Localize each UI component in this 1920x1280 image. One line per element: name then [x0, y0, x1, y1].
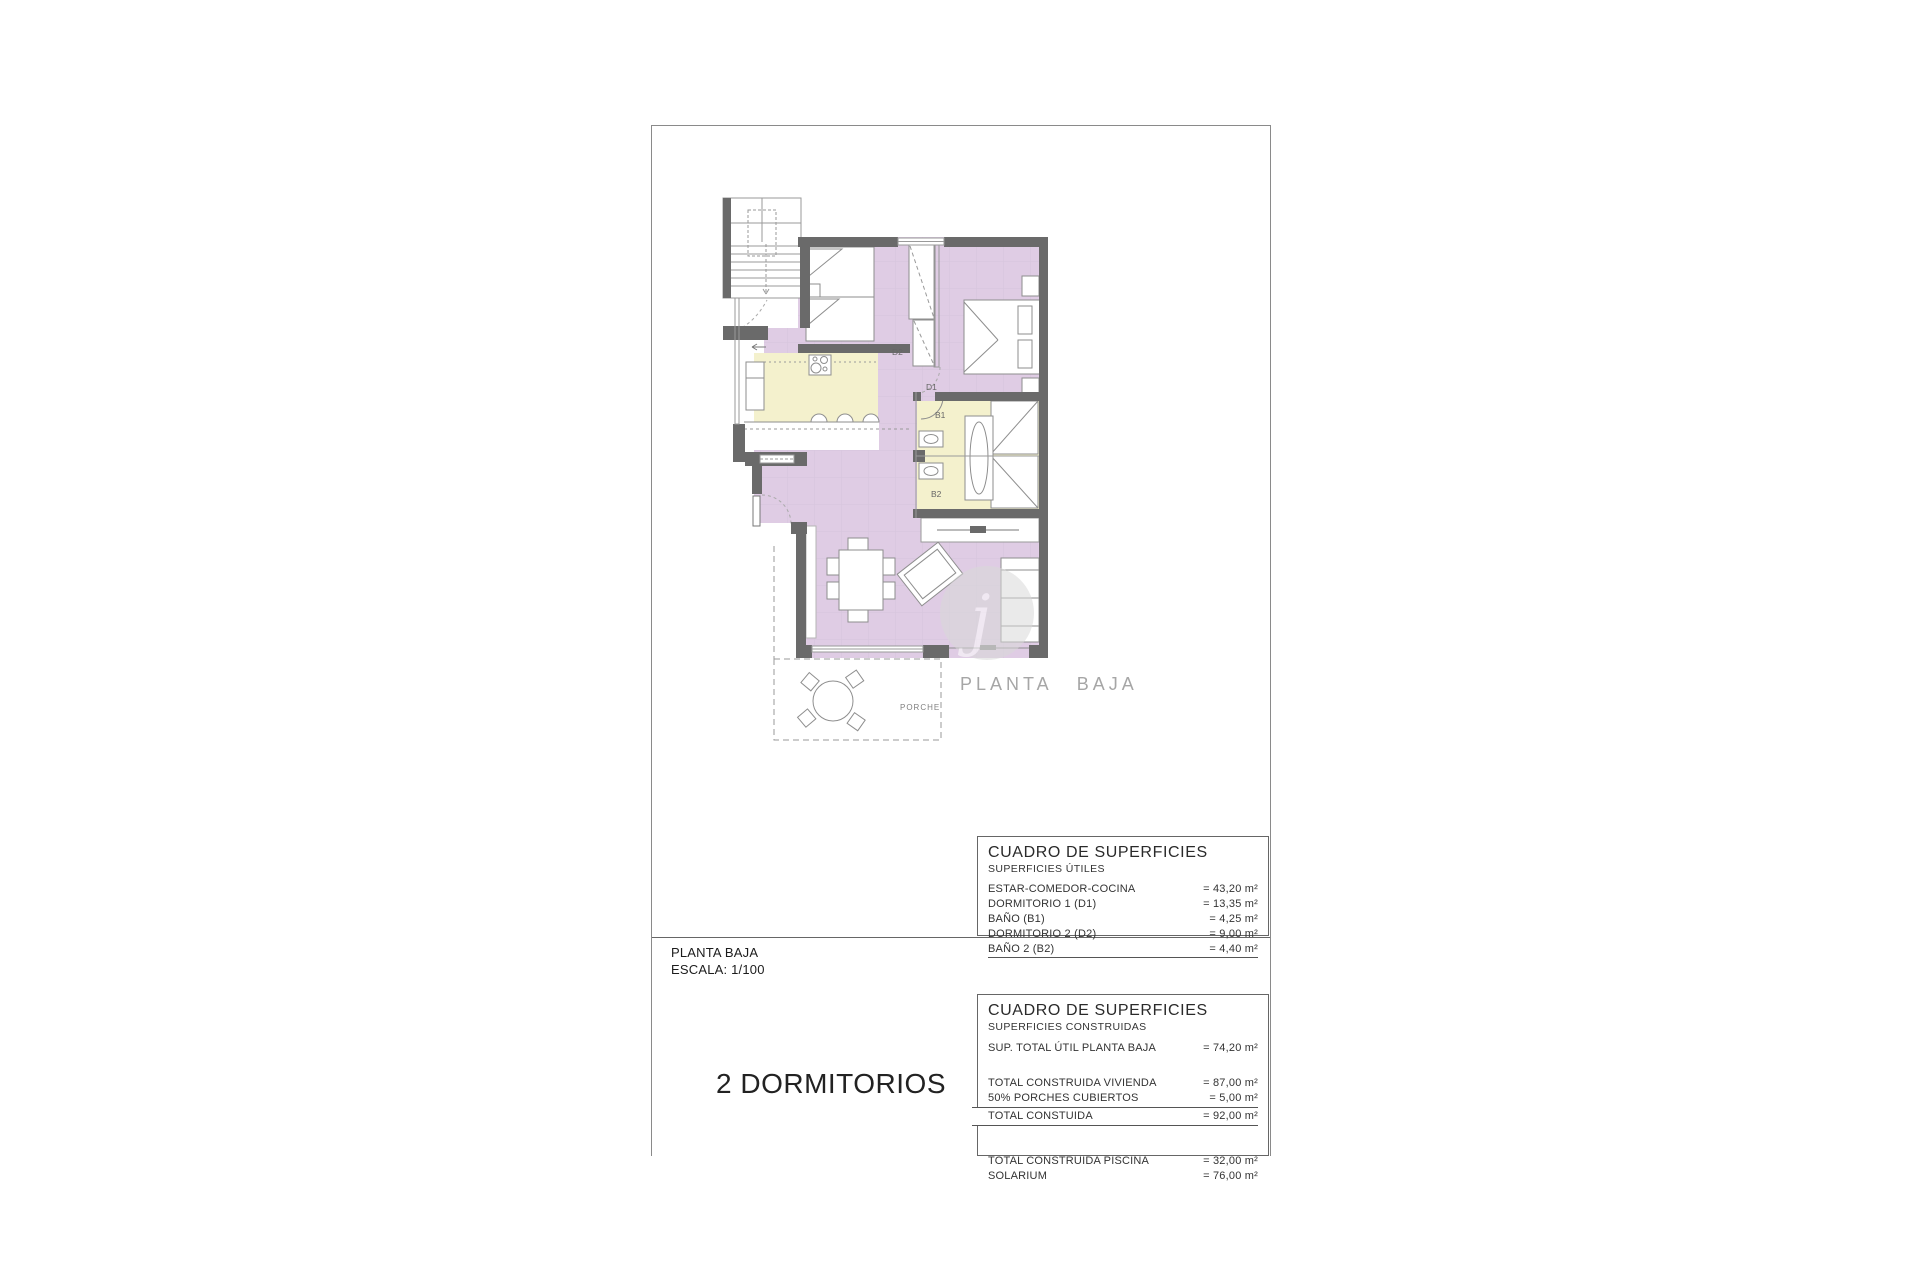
dwelling-type-label: 2 DORMITORIOS [716, 1068, 946, 1100]
table-row: DORMITORIO 2 (D2) = 9,00 m² [988, 927, 1258, 942]
table-row: 50% PORCHES CUBIERTOS = 5,00 m² [988, 1091, 1258, 1106]
row-label: TOTAL CONSTUIDA [988, 1109, 1093, 1124]
row-value: = 87,00 m² [1203, 1076, 1258, 1091]
label-b1: B1 [935, 410, 946, 420]
scale-value: ESCALA: 1/100 [671, 961, 765, 978]
porch-chair [846, 670, 864, 688]
row-label: ESTAR-COMEDOR-COCINA [988, 882, 1135, 897]
table-subtitle: SUPERFICIES ÚTILES [988, 863, 1258, 875]
table-rows: ESTAR-COMEDOR-COCINA = 43,20 m² DORMITOR… [988, 882, 1258, 958]
row-value: = 4,40 m² [1209, 942, 1258, 957]
closet-d2 [909, 245, 939, 367]
row-label: 50% PORCHES CUBIERTOS [988, 1091, 1139, 1106]
total-band: TOTAL CONSTUIDA = 92,00 m² [972, 1107, 1258, 1126]
porch-chair [801, 673, 819, 691]
label-d1: D1 [926, 382, 937, 392]
arrow-icon [752, 344, 766, 350]
wardrobe-sliding [921, 518, 1039, 542]
spacer [988, 1126, 1258, 1146]
table-row: BAÑO 2 (B2) = 4,40 m² [988, 942, 1258, 958]
row-label: TOTAL CONSTRUIDA PISCINA [988, 1154, 1149, 1169]
row-label: SUP. TOTAL ÚTIL PLANTA BAJA [988, 1041, 1156, 1056]
row-label: BAÑO 2 (B2) [988, 942, 1054, 957]
row-value: = 9,00 m² [1209, 927, 1258, 942]
dining-table [839, 550, 883, 610]
row-value: = 32,00 m² [1203, 1154, 1258, 1169]
scale-block: PLANTA BAJA ESCALA: 1/100 [671, 944, 765, 978]
table-superficies-construidas: CUADRO DE SUPERFICIES SUPERFICIES CONSTR… [977, 994, 1269, 1156]
table-row: SOLARIUM = 76,00 m² [988, 1169, 1258, 1184]
row-label: TOTAL CONSTRUIDA VIVIENDA [988, 1076, 1157, 1091]
table-subtitle: SUPERFICIES CONSTRUIDAS [988, 1021, 1258, 1033]
row-label: BAÑO (B1) [988, 912, 1045, 927]
row-value: = 43,20 m² [1203, 882, 1258, 897]
label-d2: D2 [892, 347, 903, 357]
table-row-total: TOTAL CONSTUIDA = 92,00 m² [988, 1109, 1258, 1124]
row-label: DORMITORIO 1 (D1) [988, 897, 1096, 912]
row-value: = 74,20 m² [1203, 1041, 1258, 1056]
watermark: j [940, 566, 1034, 660]
cabinet [746, 378, 764, 410]
porch-table [813, 681, 853, 721]
glazing-strip [806, 526, 816, 638]
table-title: CUADRO DE SUPERFICIES [988, 1002, 1258, 1020]
fridge [746, 362, 764, 378]
porch-chair [847, 713, 865, 731]
row-value: = 13,35 m² [1203, 897, 1258, 912]
bathtub [965, 416, 993, 500]
table-title: CUADRO DE SUPERFICIES [988, 844, 1258, 862]
row-value: = 4,25 m² [1209, 912, 1258, 927]
spacer [988, 1146, 1258, 1154]
plan-caption: PLANTA BAJA [960, 674, 1138, 695]
row-value: = 5,00 m² [1209, 1091, 1258, 1106]
porch-chair [798, 709, 816, 727]
spacer [988, 1033, 1258, 1041]
drawing-sheet: j PORCHE D2 D1 B1 B2 PLANTA BAJ [651, 125, 1271, 1156]
row-value: = 92,00 m² [1203, 1109, 1258, 1124]
spacer [988, 1056, 1258, 1076]
table-superficies-utiles: CUADRO DE SUPERFICIES SUPERFICIES ÚTILES… [977, 836, 1269, 936]
table-row: TOTAL CONSTRUIDA VIVIENDA = 87,00 m² [988, 1076, 1258, 1091]
table-row: BAÑO (B1) = 4,25 m² [988, 912, 1258, 927]
row-value: = 76,00 m² [1203, 1169, 1258, 1184]
label-b2: B2 [931, 489, 942, 499]
porch-label: PORCHE [900, 703, 940, 712]
sink [919, 463, 943, 479]
table-row: SUP. TOTAL ÚTIL PLANTA BAJA = 74,20 m² [988, 1041, 1258, 1056]
scale-plan-name: PLANTA BAJA [671, 944, 765, 961]
bar-counter [744, 422, 879, 450]
page: j PORCHE D2 D1 B1 B2 PLANTA BAJ [0, 0, 1920, 1280]
table-row: DORMITORIO 1 (D1) = 13,35 m² [988, 897, 1258, 912]
table-row: TOTAL CONSTRUIDA PISCINA = 32,00 m² [988, 1154, 1258, 1169]
row-label: DORMITORIO 2 (D2) [988, 927, 1096, 942]
bed-single [806, 247, 874, 341]
table-row: ESTAR-COMEDOR-COCINA = 43,20 m² [988, 882, 1258, 897]
row-label: SOLARIUM [988, 1169, 1047, 1184]
sink [919, 431, 943, 447]
door-leaf [753, 496, 760, 526]
